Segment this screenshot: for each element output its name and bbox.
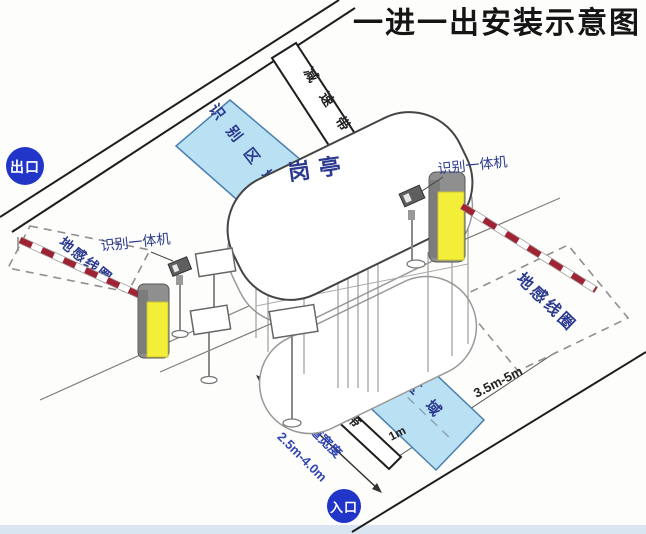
right-machine-yellow-face — [438, 192, 464, 260]
left-camera-bracket — [176, 275, 183, 285]
exit-badge-label: 出口 — [10, 159, 40, 175]
bottom-strip — [0, 525, 646, 534]
sign-post-1-board — [196, 248, 236, 277]
entrance-badge-label: 入口 — [330, 500, 358, 515]
left-camera-base — [172, 331, 188, 338]
exit-badge: 出口 — [6, 147, 44, 185]
entrance-badge: 入口 — [327, 489, 361, 523]
page-title: 一进一出安装示意图 — [353, 6, 641, 40]
left-machine-yellow-face — [147, 302, 168, 357]
sign-post-2-board — [190, 305, 230, 334]
sign-post-2-base — [201, 377, 217, 384]
right-barrier-machine — [429, 172, 465, 262]
right-camera-base — [407, 260, 425, 268]
installation-diagram: 减速带 识别区域 地感线圈 识别区域 减速带 1m 3.5m-5m 车道宽度 2… — [0, 0, 646, 534]
right-camera-bracket — [408, 210, 415, 220]
left-barrier-machine — [138, 284, 169, 358]
sign-post-3-base — [283, 419, 301, 427]
diagram-page: 减速带 识别区域 地感线圈 识别区域 减速带 1m 3.5m-5m 车道宽度 2… — [0, 0, 646, 534]
